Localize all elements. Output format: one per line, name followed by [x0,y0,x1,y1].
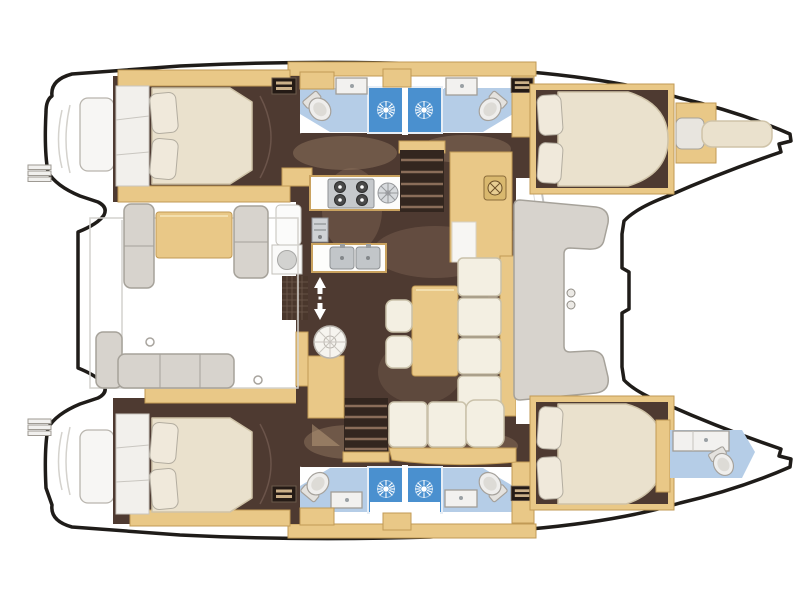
saloon-table [412,286,458,376]
cushion [676,118,704,149]
vanity-cabinet [383,69,411,87]
port-stern-ladder [28,165,51,182]
pillow [537,406,564,450]
backrest-aft [389,448,516,465]
pillow [149,468,178,510]
instrument-icon [484,176,506,200]
locker-icon [272,78,296,94]
shower-drain-icon [415,101,433,119]
cockpit-table [156,212,232,258]
floor-grate [282,276,308,320]
cockpit-bench-aft [118,354,234,388]
stove-icon [328,179,374,208]
pillow [149,422,178,464]
round-table-icon [314,326,346,358]
stool [386,300,412,332]
berth-mattress [702,121,772,147]
vanity-cabinet [300,72,334,89]
catamaran-floor-plan [0,0,800,600]
locker-icon [272,486,296,502]
starboard-aft-cabin [113,388,300,526]
starboard-side-deck-band [288,524,536,538]
faucet-icon [350,84,354,88]
stool [386,336,412,368]
oven-icon [312,218,328,242]
bed-double [558,92,668,186]
shower-drain-icon [415,480,433,498]
vanity-cabinet [300,508,334,525]
pillow [149,92,178,134]
pillow [537,456,564,500]
vanity-cabinet [383,513,411,530]
wardrobe [116,414,149,514]
floor-plan-image [0,0,800,600]
wardrobe [116,86,149,186]
nav-station [450,152,512,262]
starboard-stern-ladder [28,419,51,436]
deck-cap-icon [567,289,575,297]
faucet-icon [460,84,464,88]
deck-cap-icon [567,301,575,309]
faucet-icon [704,438,708,442]
shower-drain-icon [377,101,395,119]
deck-ring-icon [254,376,262,384]
deck-ring-icon [146,338,154,346]
faucet-icon [345,498,349,502]
port-forward-cabin [530,84,674,194]
round-sink-icon [378,183,398,203]
pillow [537,142,564,184]
shower-drain-icon [377,480,395,498]
stairs-starboard [343,398,389,462]
pillow [149,138,178,180]
pillow [537,94,564,136]
faucet-icon [459,496,463,500]
bed-double [558,404,664,504]
stairs-port [399,141,445,212]
starboard-forward-cabin [530,396,674,510]
